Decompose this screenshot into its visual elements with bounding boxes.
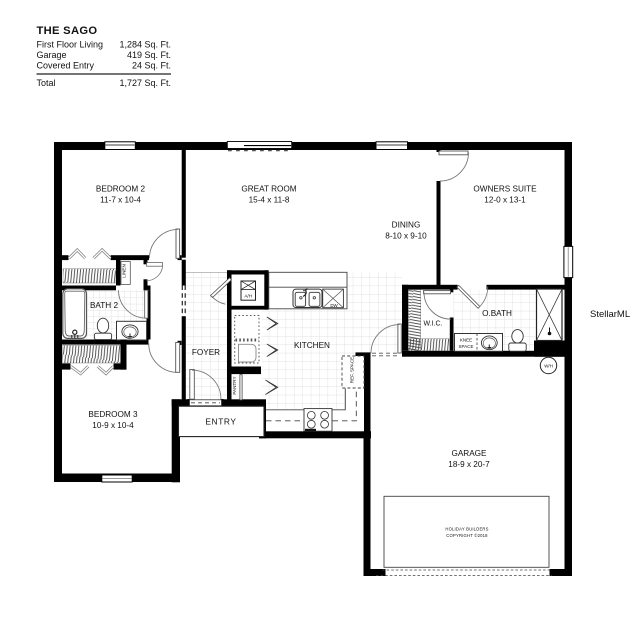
svg-text:18-9 x 20-7: 18-9 x 20-7 — [448, 460, 490, 469]
svg-text:GREAT ROOM: GREAT ROOM — [241, 185, 296, 194]
svg-text:DW: DW — [330, 303, 338, 308]
svg-text:OWNERS SUITE: OWNERS SUITE — [473, 185, 537, 194]
svg-text:THE SAGO: THE SAGO — [37, 25, 98, 37]
svg-text:BEDROOM 2: BEDROOM 2 — [96, 185, 146, 194]
svg-text:W.I.C.: W.I.C. — [423, 321, 442, 328]
svg-text:W/H: W/H — [544, 364, 553, 369]
svg-text:HOLIDAY BUILDERS: HOLIDAY BUILDERS — [445, 527, 488, 532]
svg-text:PANTRY: PANTRY — [232, 376, 237, 394]
svg-text:O.BATH: O.BATH — [482, 309, 512, 318]
svg-text:15-4 x 11-8: 15-4 x 11-8 — [249, 196, 290, 205]
svg-text:COPYRIGHT ©2018: COPYRIGHT ©2018 — [446, 533, 488, 538]
svg-text:24 Sq. Ft.: 24 Sq. Ft. — [132, 61, 171, 71]
svg-text:BATH 2: BATH 2 — [90, 301, 119, 310]
svg-text:First Floor Living: First Floor Living — [37, 40, 104, 50]
svg-text:KITCHEN: KITCHEN — [294, 341, 330, 350]
svg-text:1,727 Sq. Ft.: 1,727 Sq. Ft. — [119, 78, 171, 88]
svg-text:REF. SPACE: REF. SPACE — [350, 357, 355, 383]
svg-text:BEDROOM 3: BEDROOM 3 — [88, 410, 138, 419]
svg-text:GARAGE: GARAGE — [451, 449, 487, 458]
svg-text:ENTRY: ENTRY — [205, 417, 236, 427]
svg-text:419 Sq. Ft.: 419 Sq. Ft. — [127, 50, 171, 60]
svg-text:FOYER: FOYER — [192, 348, 220, 357]
svg-text:LINEN: LINEN — [122, 264, 127, 278]
svg-text:Covered Entry: Covered Entry — [37, 61, 95, 71]
svg-text:A/H: A/H — [244, 294, 252, 299]
svg-text:KNEE: KNEE — [460, 338, 472, 343]
svg-text:Garage: Garage — [37, 50, 67, 60]
svg-text:StellarMLS: StellarMLS — [590, 309, 630, 320]
svg-text:10-9 x 10-4: 10-9 x 10-4 — [92, 421, 134, 430]
svg-text:11-7 x 10-4: 11-7 x 10-4 — [100, 196, 141, 205]
svg-text:8-10 x 9-10: 8-10 x 9-10 — [385, 232, 427, 241]
svg-text:12-0 x 13-1: 12-0 x 13-1 — [484, 196, 526, 205]
svg-text:Total: Total — [37, 78, 56, 88]
svg-text:DINING: DINING — [392, 221, 421, 230]
svg-text:1,284 Sq. Ft.: 1,284 Sq. Ft. — [119, 40, 171, 50]
svg-text:SPACE: SPACE — [459, 344, 474, 349]
